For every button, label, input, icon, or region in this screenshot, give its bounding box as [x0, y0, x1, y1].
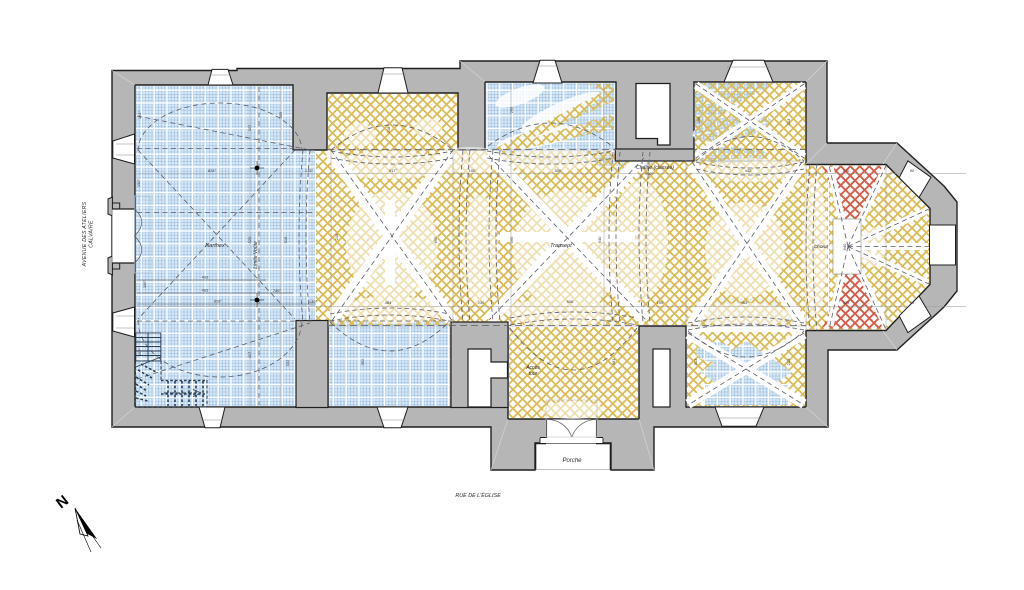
svg-text:327: 327 [247, 124, 252, 131]
svg-text:624°: 624° [208, 168, 217, 173]
svg-text:195°: 195° [142, 279, 147, 288]
svg-text:313: 313 [786, 118, 791, 125]
svg-text:442: 442 [745, 168, 752, 173]
svg-text:355: 355 [278, 111, 283, 118]
svg-text:519: 519 [283, 236, 288, 243]
svg-text:tour: tour [529, 371, 538, 377]
svg-text:484: 484 [385, 300, 392, 305]
svg-text:520: 520 [247, 236, 252, 243]
svg-text:RUE DE L'ÉGLISE: RUE DE L'ÉGLISE [455, 492, 501, 499]
svg-text:628°: 628° [214, 299, 223, 304]
svg-text:900°: 900° [645, 171, 654, 176]
svg-text:Narthex: Narthex [205, 243, 225, 249]
svg-text:391: 391 [611, 358, 616, 365]
svg-text:320: 320 [843, 168, 850, 173]
svg-text:130°: 130° [309, 299, 318, 304]
svg-text:785°: 785° [273, 288, 282, 293]
svg-text:392: 392 [360, 358, 365, 365]
svg-text:90: 90 [910, 300, 915, 305]
svg-text:Chaîne (classée): Chaîne (classée) [636, 165, 674, 171]
svg-text:Transept: Transept [550, 243, 572, 249]
svg-text:332: 332 [285, 359, 290, 366]
svg-text:295: 295 [509, 106, 514, 113]
svg-text:640: 640 [842, 243, 847, 250]
svg-text:90: 90 [910, 168, 915, 173]
svg-text:493: 493 [202, 275, 209, 280]
svg-text:AVENUE DES ATELIERS: AVENUE DES ATELIERS [82, 201, 88, 267]
svg-text:100: 100 [469, 168, 476, 173]
svg-text:155°: 155° [137, 347, 142, 356]
svg-text:133°: 133° [305, 168, 314, 173]
svg-text:313: 313 [693, 358, 698, 365]
svg-text:218: 218 [334, 233, 339, 240]
svg-text:695: 695 [433, 236, 438, 243]
svg-text:194°: 194° [137, 110, 142, 119]
svg-text:640: 640 [597, 236, 602, 243]
svg-text:Limite Voûte: Limite Voûte [253, 241, 259, 269]
svg-text:506: 506 [567, 299, 574, 304]
svg-text:219: 219 [786, 358, 791, 365]
svg-text:295: 295 [696, 116, 701, 123]
svg-text:230: 230 [478, 300, 485, 305]
svg-text:417: 417 [247, 351, 252, 358]
svg-text:Chœur: Chœur [814, 244, 829, 249]
svg-text:463: 463 [741, 300, 748, 305]
svg-text:483: 483 [202, 288, 209, 293]
svg-text:506: 506 [555, 168, 562, 173]
svg-text:190°: 190° [136, 178, 141, 187]
svg-text:Porche: Porche [562, 458, 582, 464]
svg-text:CALVAIRE: CALVAIRE [89, 220, 95, 248]
svg-text:325: 325 [843, 300, 850, 305]
svg-text:595: 595 [509, 236, 514, 243]
svg-text:517°: 517° [389, 168, 398, 173]
svg-text:195: 195 [657, 300, 664, 305]
svg-text:218: 218 [386, 126, 391, 133]
